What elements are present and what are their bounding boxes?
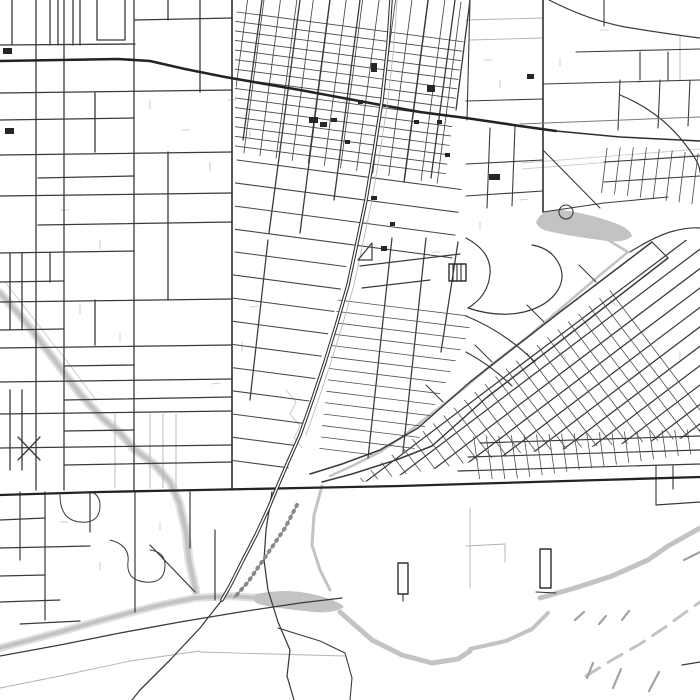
roads-ne (466, 0, 700, 212)
map-canvas (0, 0, 700, 700)
ne-ladder-rungs (602, 143, 698, 204)
main-road-ew1 (0, 59, 556, 131)
roads-tl (0, 0, 232, 490)
arterials (232, 0, 543, 488)
suburb-curves (60, 492, 165, 582)
road-bottom-branch (278, 628, 352, 700)
map-viewport (0, 0, 700, 700)
midband-cols (250, 238, 460, 458)
railroad (234, 505, 297, 598)
roads-bottom (656, 466, 700, 665)
wash-se-3 (540, 528, 700, 598)
midband-rungs (320, 300, 482, 466)
wash-se-1 (340, 612, 470, 663)
structure-outlines (398, 264, 551, 594)
downtown-sw-rows (208, 252, 354, 473)
road-y122 (520, 117, 700, 124)
faint-path-sw (0, 651, 200, 688)
road-sw-exit (132, 600, 222, 700)
creek-south (312, 486, 330, 590)
faint-path-south (200, 652, 345, 656)
downtown-rows-south (228, 160, 461, 258)
wash-se-2 (470, 613, 548, 649)
main-road-ew2 (0, 477, 700, 495)
buildings (3, 48, 534, 251)
railroad-ties (234, 505, 297, 598)
downtown-cols-long (243, 0, 470, 233)
roads-ne-curves (466, 0, 700, 386)
channel-ne (522, 149, 700, 169)
faint-roads (115, 18, 680, 588)
